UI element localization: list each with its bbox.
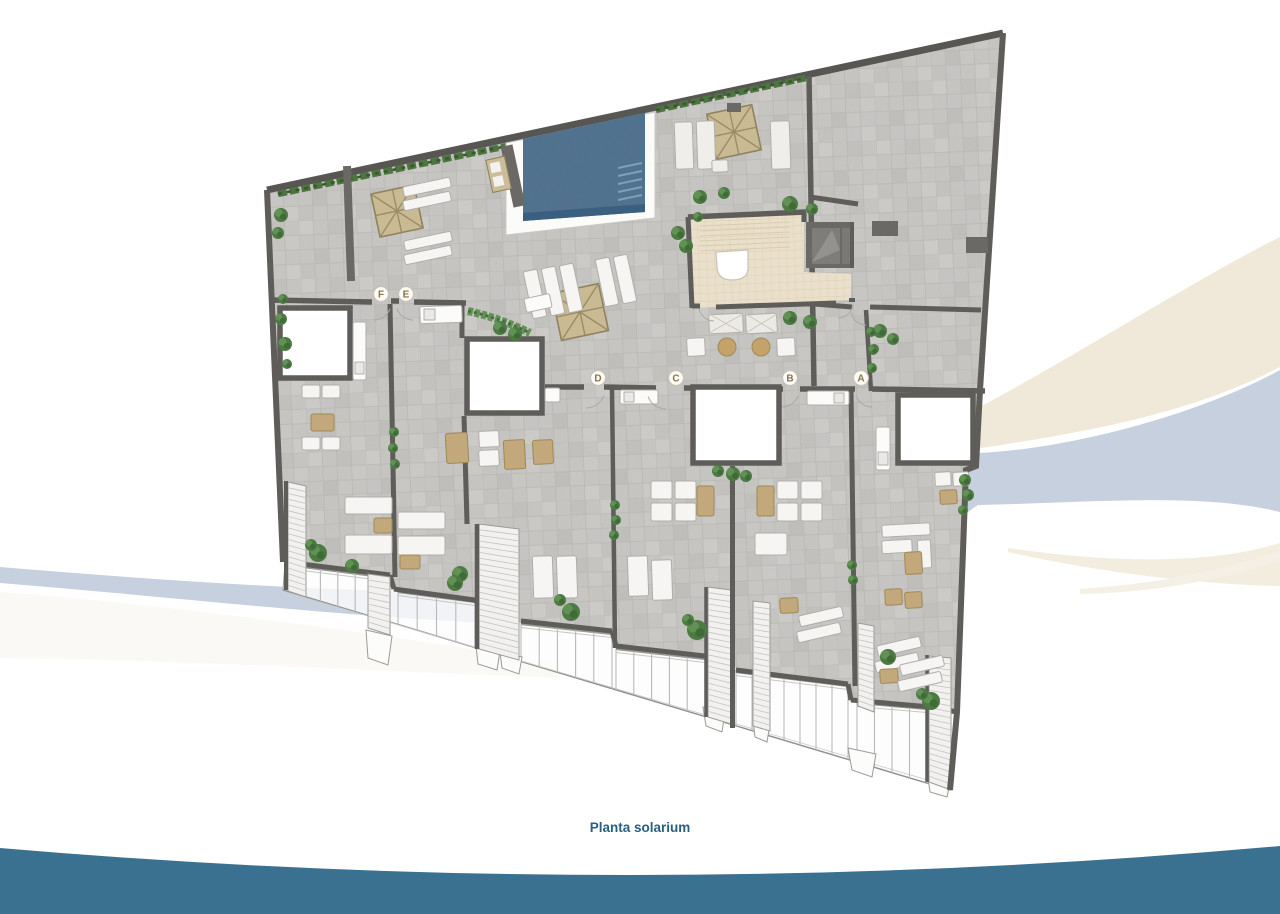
svg-text:A: A <box>857 374 864 385</box>
svg-text:C: C <box>672 374 679 385</box>
svg-text:Planta solarium: Planta solarium <box>590 820 691 835</box>
svg-text:F: F <box>378 290 384 301</box>
svg-text:E: E <box>403 290 410 301</box>
svg-text:D: D <box>594 374 601 385</box>
svg-text:B: B <box>786 374 793 385</box>
